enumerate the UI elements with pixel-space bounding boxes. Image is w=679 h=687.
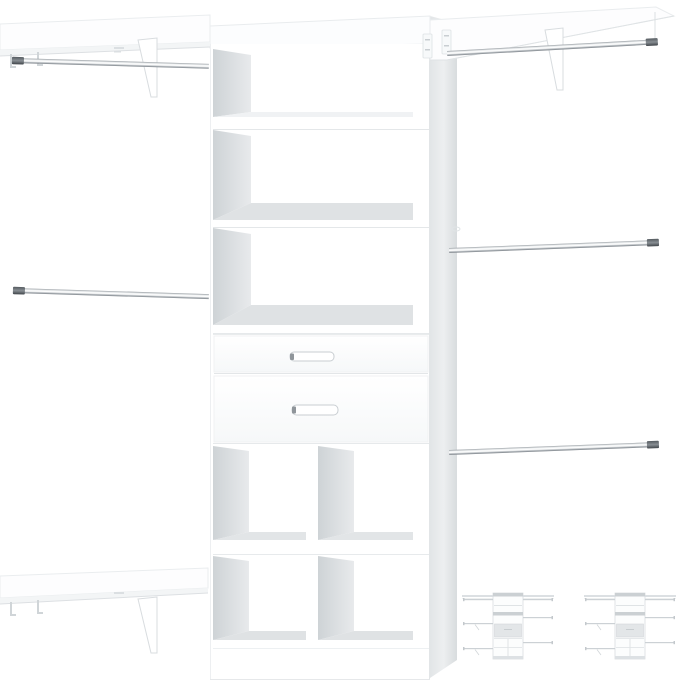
drawer-section bbox=[213, 335, 430, 444]
tower-shelf-3 bbox=[213, 325, 430, 334]
cubby-bottom-right bbox=[318, 556, 413, 640]
tower-shelf-opening-1 bbox=[213, 49, 413, 117]
rod-end-cap bbox=[647, 441, 659, 449]
mounting-plate bbox=[442, 30, 451, 54]
mounting-plate bbox=[423, 34, 432, 58]
product-image bbox=[0, 0, 679, 687]
drawer-2-handle bbox=[292, 405, 338, 415]
rod-end-cap bbox=[12, 57, 24, 65]
tower-shelf-opening-2 bbox=[213, 130, 413, 220]
cubby-top-left bbox=[213, 446, 306, 540]
tower-side-panel bbox=[430, 16, 457, 678]
tower-shelf-1 bbox=[213, 117, 430, 130]
cubby-bottom-left bbox=[213, 556, 306, 640]
tower-shelf-2 bbox=[213, 220, 430, 228]
cubby-section bbox=[213, 446, 430, 678]
rod-end-cap bbox=[13, 287, 25, 295]
cubby-middle-shelf bbox=[213, 540, 430, 556]
tower-shelf-opening-3 bbox=[213, 228, 413, 325]
tower-unit bbox=[210, 16, 457, 680]
cubby-top-right bbox=[318, 446, 413, 540]
drawer-1-handle bbox=[290, 352, 334, 361]
tower-base bbox=[213, 640, 430, 678]
rod-end-cap bbox=[646, 38, 658, 46]
rod-end-cap bbox=[647, 239, 659, 247]
